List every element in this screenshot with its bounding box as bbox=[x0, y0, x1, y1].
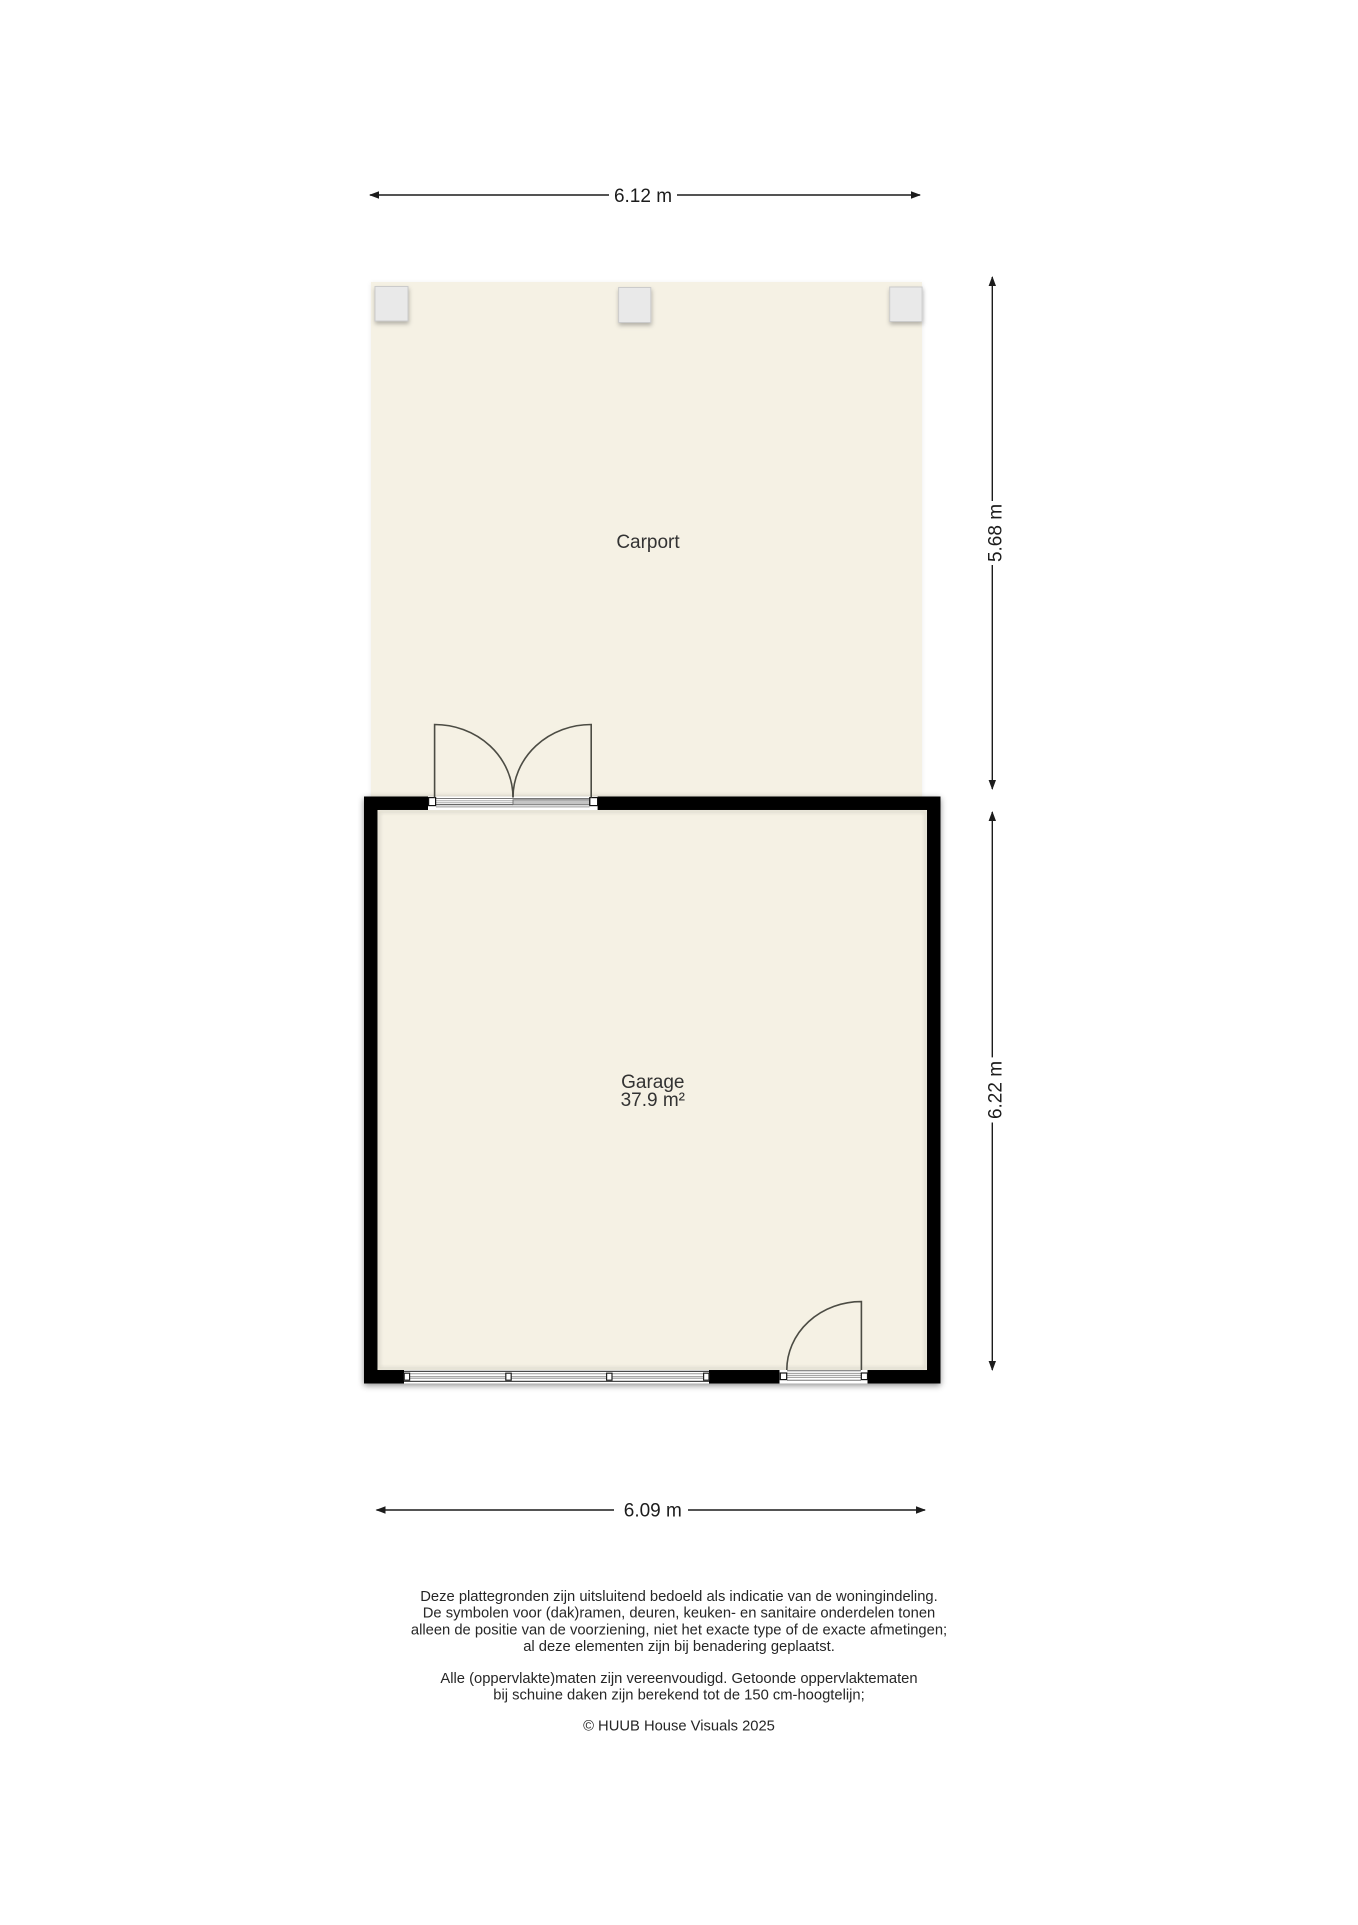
svg-text:Carport: Carport bbox=[616, 532, 680, 553]
svg-text:5.68 m: 5.68 m bbox=[986, 504, 1007, 562]
svg-text:6.22 m: 6.22 m bbox=[986, 1061, 1007, 1119]
svg-text:6.09 m: 6.09 m bbox=[624, 1501, 682, 1522]
svg-text:al deze elementen zijn bij ben: al deze elementen zijn bij benadering ge… bbox=[523, 1639, 835, 1655]
svg-text:© HUUB House Visuals 2025: © HUUB House Visuals 2025 bbox=[583, 1719, 775, 1735]
svg-text:De symbolen voor (dak)ramen, d: De symbolen voor (dak)ramen, deuren, keu… bbox=[423, 1606, 935, 1622]
svg-text:Deze plattegronden zijn uitslu: Deze plattegronden zijn uitsluitend bedo… bbox=[420, 1589, 937, 1605]
svg-text:37.9 m²: 37.9 m² bbox=[621, 1090, 685, 1111]
svg-text:bij schuine daken zijn bereken: bij schuine daken zijn berekend tot de 1… bbox=[493, 1688, 864, 1704]
svg-text:Alle (oppervlakte)maten zijn v: Alle (oppervlakte)maten zijn vereenvoudi… bbox=[440, 1671, 917, 1687]
svg-text:6.12 m: 6.12 m bbox=[614, 186, 672, 207]
svg-text:alleen de positie van de voorz: alleen de positie van de voorziening, ni… bbox=[411, 1622, 947, 1638]
